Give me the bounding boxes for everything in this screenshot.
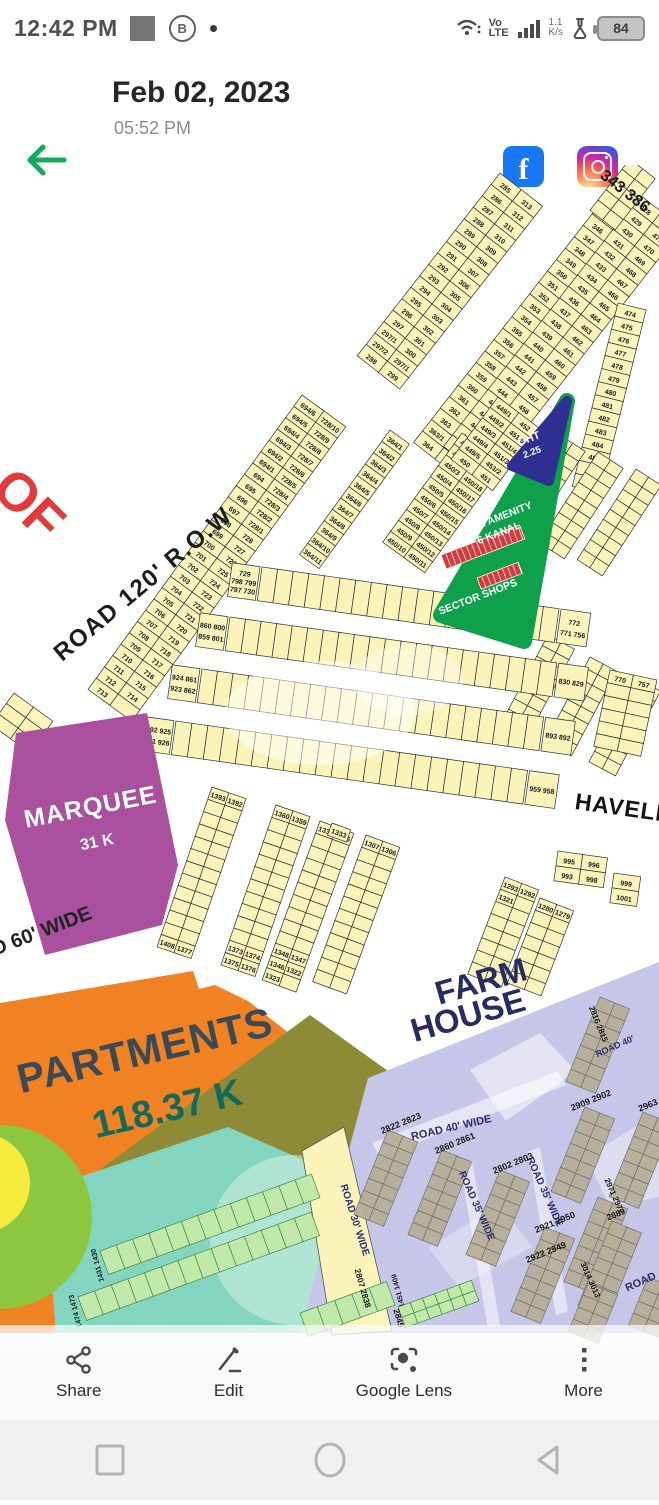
- google-lens-label: Google Lens: [356, 1381, 452, 1401]
- svg-text:OF: OF: [0, 457, 76, 552]
- recents-button[interactable]: [92, 1442, 128, 1478]
- flask-icon: [570, 16, 590, 40]
- more-button[interactable]: More: [564, 1345, 603, 1401]
- notification-dot-icon: [210, 25, 217, 32]
- screenshot-icon: [130, 16, 155, 41]
- wifi-icon: [456, 16, 482, 40]
- share-button[interactable]: Share: [56, 1345, 101, 1401]
- plot-map-image: 2853132863122873112883102893092903082913…: [0, 165, 659, 1500]
- back-nav-button[interactable]: [531, 1442, 567, 1478]
- share-icon: [64, 1345, 94, 1375]
- share-label: Share: [56, 1381, 101, 1401]
- photo-view[interactable]: 2853132863122873112883102893092903082913…: [0, 165, 659, 1500]
- edit-button[interactable]: Edit: [214, 1345, 244, 1401]
- android-navbar: [0, 1420, 659, 1500]
- gallery-header: Feb 02, 2023 05:52 PM f: [0, 56, 659, 165]
- app-notification-icon: B: [169, 15, 196, 42]
- edit-label: Edit: [214, 1381, 243, 1401]
- signal-bars-icon: [516, 17, 542, 39]
- home-button[interactable]: [310, 1440, 350, 1480]
- google-lens-icon: [388, 1345, 420, 1375]
- more-icon: [569, 1345, 599, 1375]
- clock: 12:42 PM: [14, 15, 118, 42]
- status-bar: 12:42 PM B VoLTE 1.1K/s 84: [0, 0, 659, 56]
- google-lens-button[interactable]: Google Lens: [356, 1345, 452, 1401]
- network-type-label: VoLTE: [489, 18, 509, 38]
- edit-icon: [214, 1345, 244, 1375]
- svg-text:HAVELI: HAVELI: [573, 788, 659, 826]
- more-label: More: [564, 1381, 603, 1401]
- photo-time: 05:52 PM: [114, 118, 191, 139]
- battery-icon: 84: [597, 16, 645, 41]
- photo-date: Feb 02, 2023: [112, 76, 290, 110]
- bottom-toolbar: Share Edit Google Lens More: [0, 1325, 659, 1420]
- data-speed-label: 1.1K/s: [549, 18, 563, 38]
